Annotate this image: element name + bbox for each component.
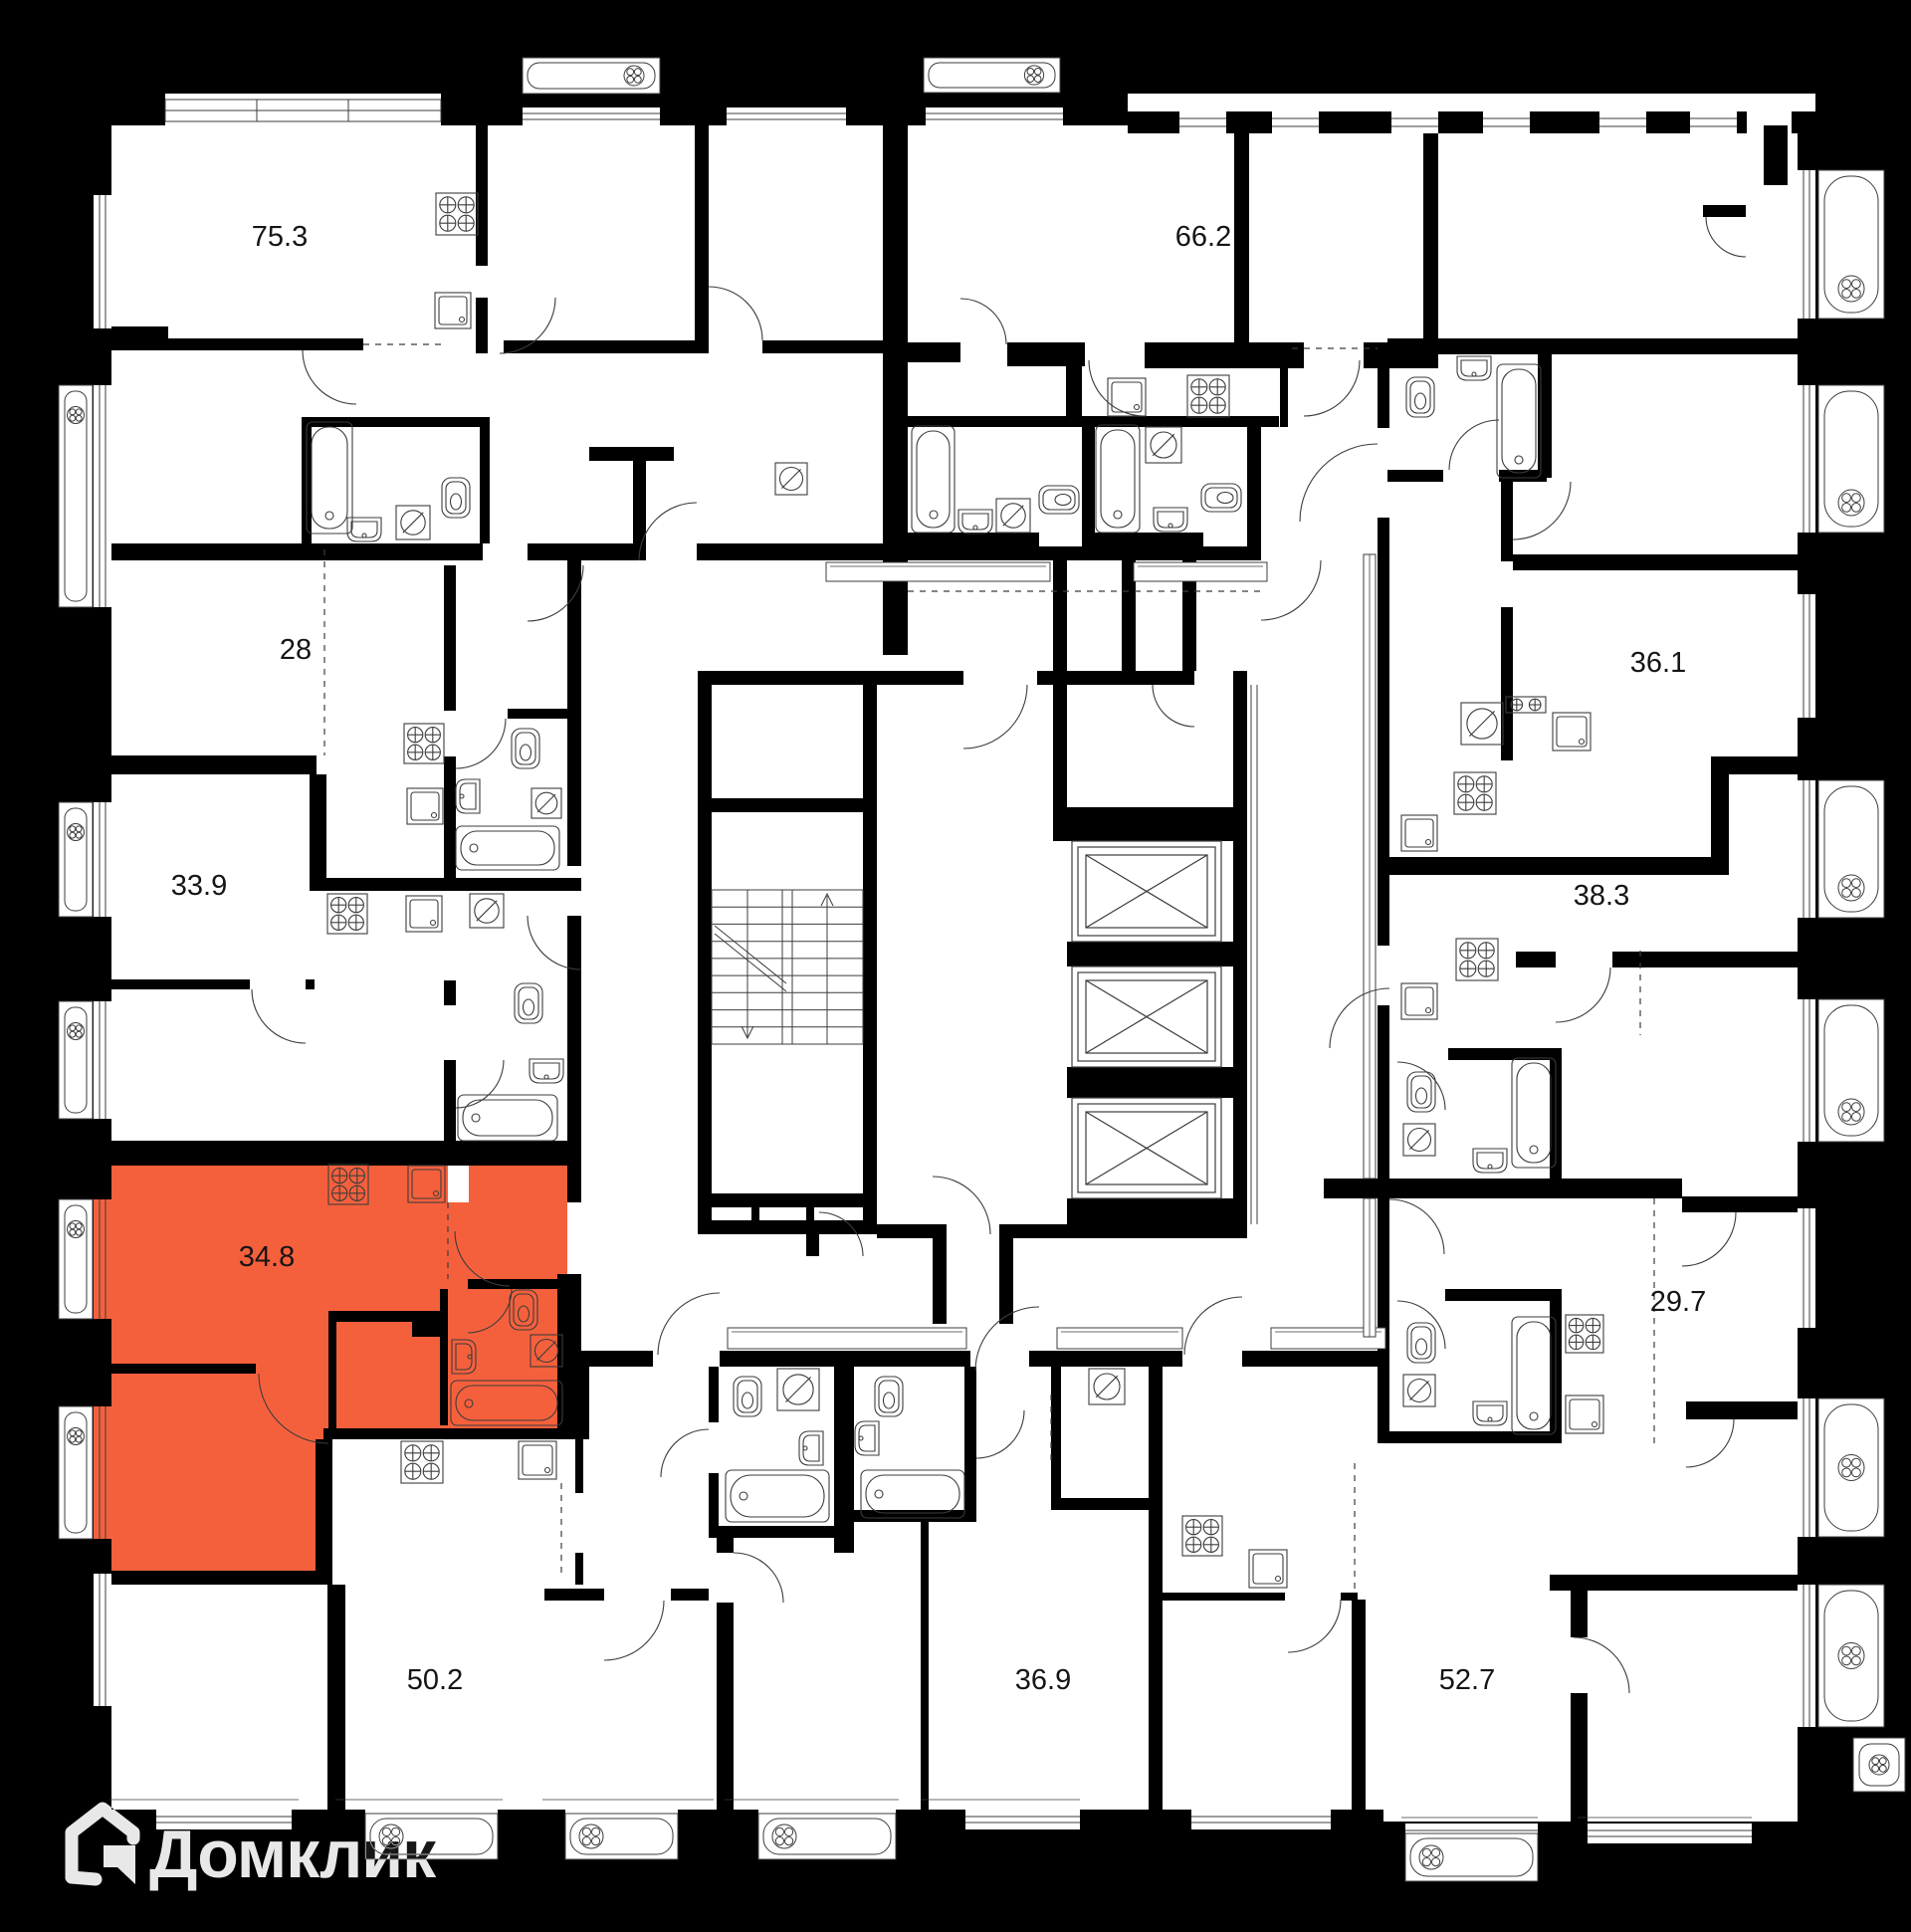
- svg-text:36.1: 36.1: [1630, 647, 1686, 679]
- svg-text:52.7: 52.7: [1439, 1664, 1495, 1696]
- svg-text:33.9: 33.9: [171, 870, 227, 902]
- svg-text:36.9: 36.9: [1015, 1664, 1071, 1696]
- svg-text:28: 28: [280, 634, 312, 666]
- svg-text:Домклик: Домклик: [149, 1817, 437, 1892]
- svg-text:29.7: 29.7: [1650, 1286, 1706, 1318]
- svg-text:50.2: 50.2: [407, 1664, 463, 1696]
- svg-text:66.2: 66.2: [1175, 221, 1231, 253]
- svg-text:34.8: 34.8: [239, 1241, 295, 1273]
- svg-text:38.3: 38.3: [1574, 880, 1629, 912]
- svg-text:75.3: 75.3: [252, 221, 308, 253]
